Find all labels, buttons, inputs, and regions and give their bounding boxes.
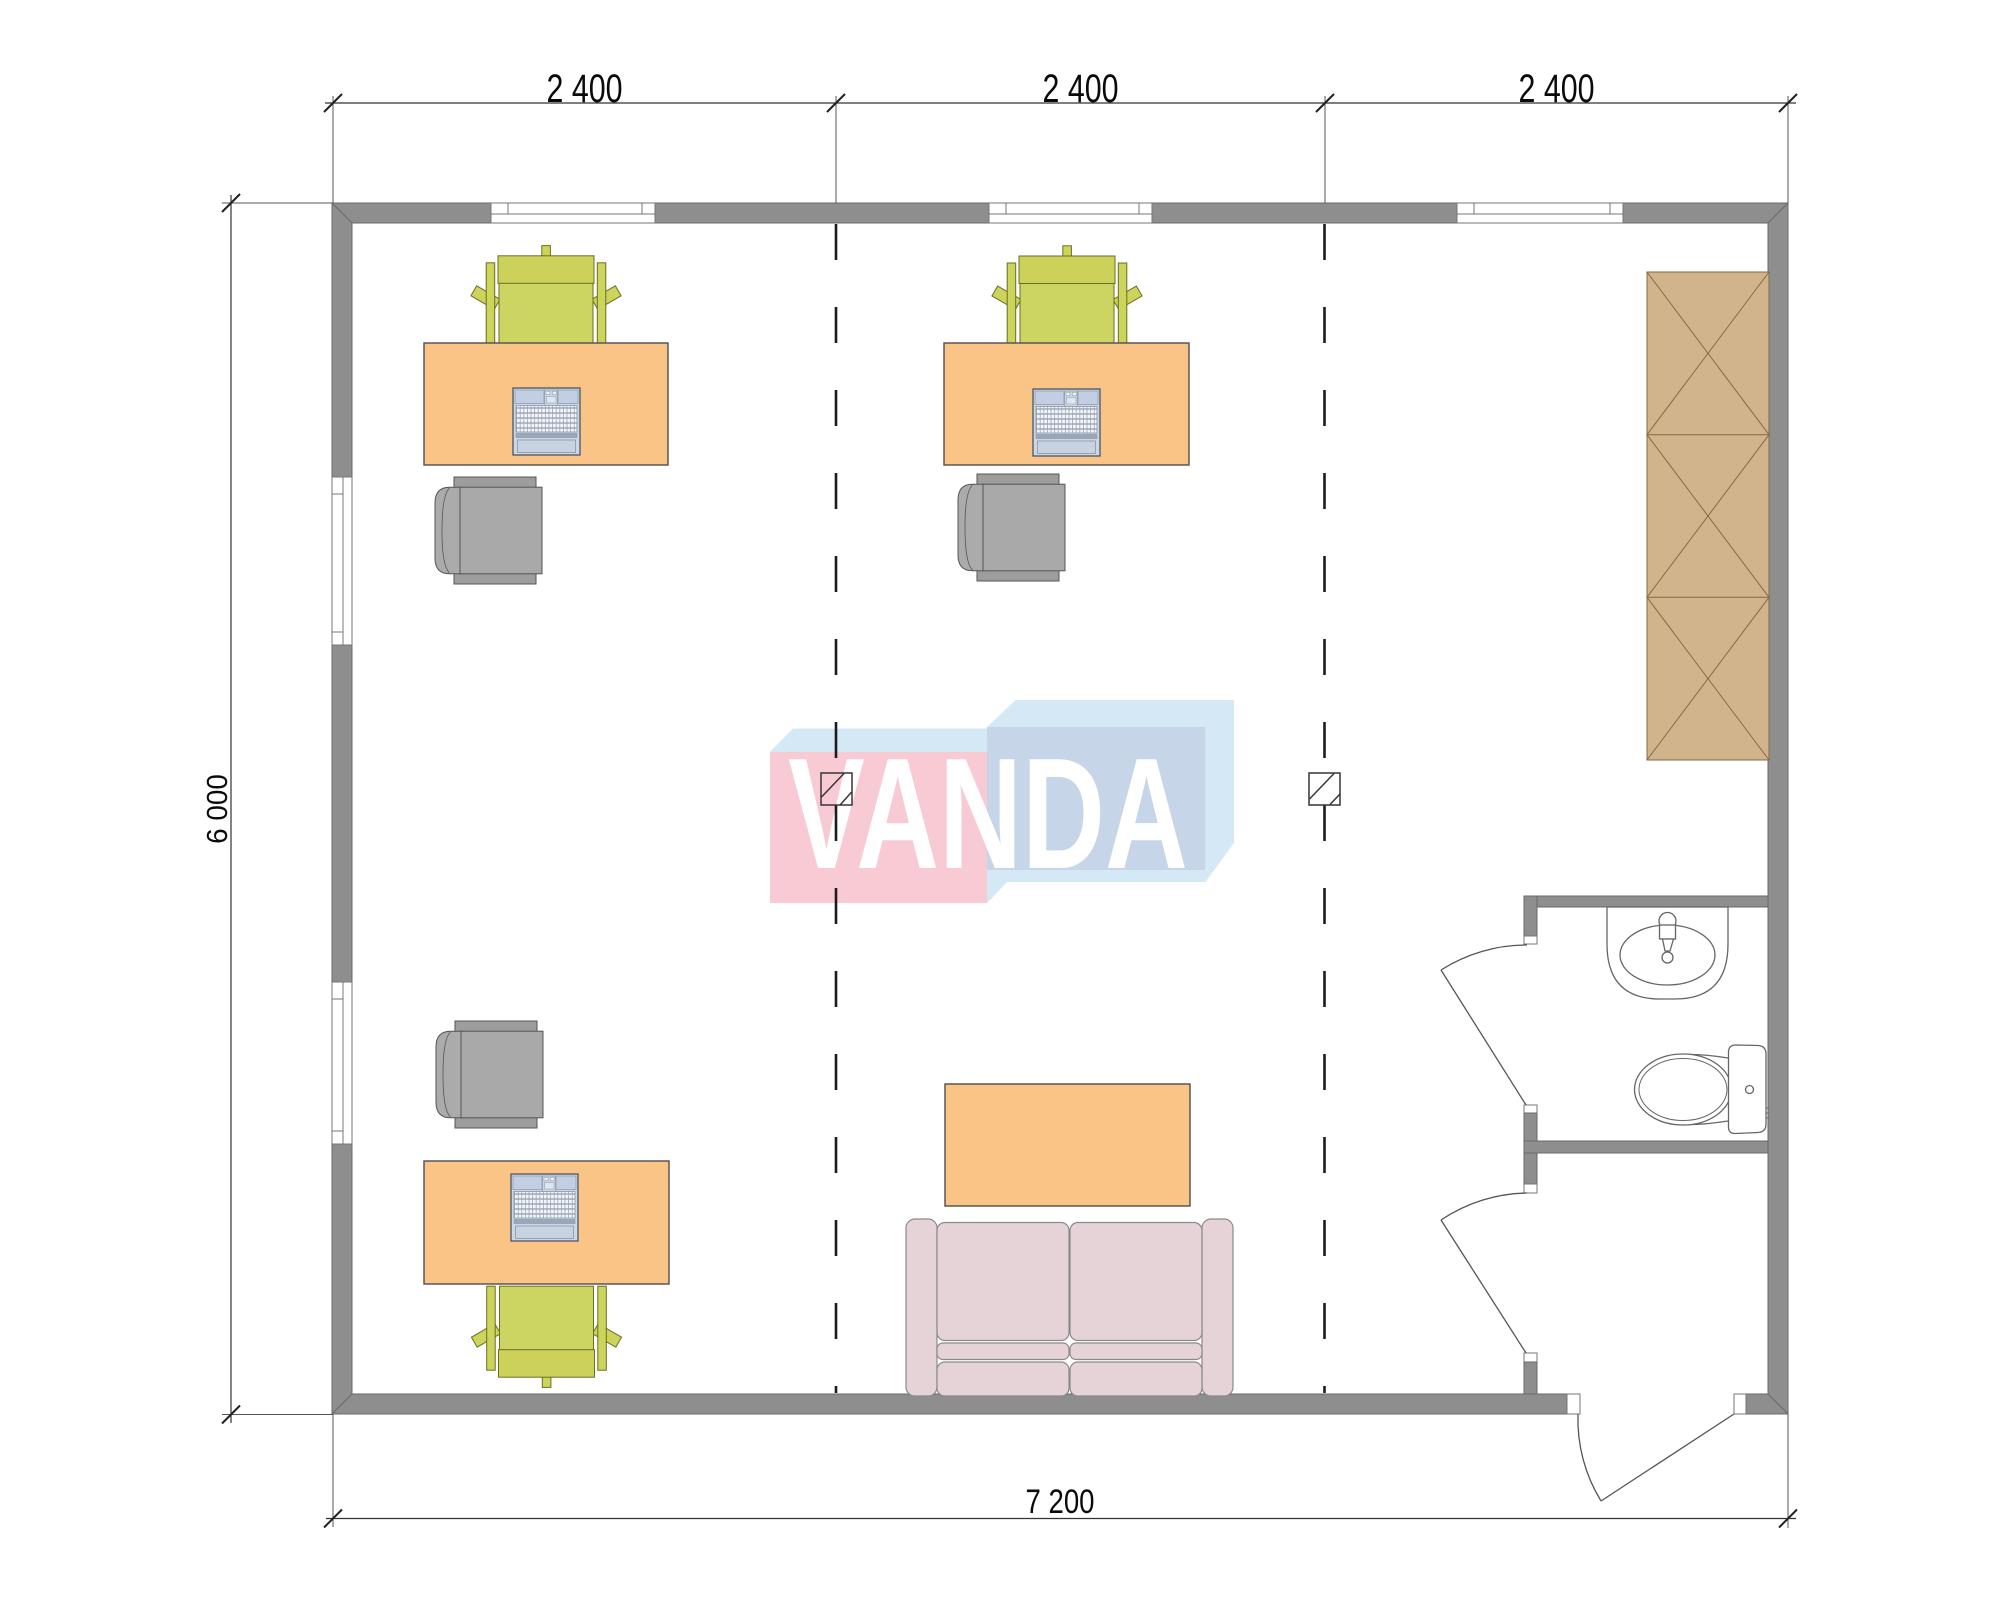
- svg-text:7 200: 7 200: [1025, 1482, 1094, 1521]
- svg-text:6 000: 6 000: [201, 774, 234, 844]
- svg-text:2 400: 2 400: [1518, 66, 1594, 111]
- svg-text:2 400: 2 400: [546, 66, 622, 111]
- svg-text:VANDA: VANDA: [788, 726, 1188, 902]
- svg-text:2 400: 2 400: [1042, 66, 1118, 111]
